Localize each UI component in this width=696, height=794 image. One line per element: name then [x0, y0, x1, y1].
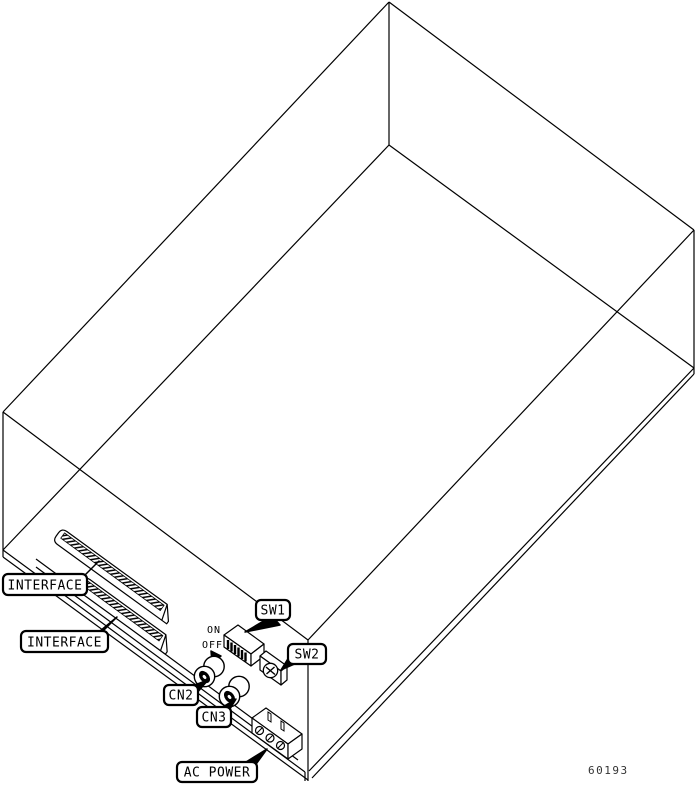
- sw1-label: SW1: [261, 604, 286, 619]
- interface-1-label: INTERFACE: [8, 579, 83, 594]
- callout-sw2: SW2: [281, 644, 326, 670]
- dip-on-label: ON: [207, 625, 221, 636]
- callout-ac-power: AC POWER: [177, 749, 267, 782]
- callout-interface-2: INTERFACE: [21, 617, 117, 652]
- terminal-slot-2: [281, 721, 284, 731]
- coax-connector-cn2: [194, 656, 224, 686]
- terminal-slot-1: [268, 712, 271, 722]
- sw2-label: SW2: [295, 648, 320, 663]
- technical-diagram: ON OFF: [0, 0, 696, 794]
- dip-off-label: OFF: [202, 640, 223, 651]
- ac-power-label: AC POWER: [184, 766, 251, 781]
- diagram-canvas: ON OFF: [0, 0, 696, 794]
- callout-interface-1: INTERFACE: [3, 561, 99, 595]
- enclosure-wireframe: [3, 2, 694, 781]
- ac-terminal-block: [252, 708, 302, 759]
- figure-number: 60193: [588, 764, 629, 777]
- callout-cn2: CN2: [164, 680, 208, 705]
- callout-sw1: SW1: [245, 600, 290, 632]
- cn3-label: CN3: [202, 711, 227, 726]
- cn2-label: CN2: [169, 689, 194, 704]
- interface-2-label: INTERFACE: [27, 636, 102, 651]
